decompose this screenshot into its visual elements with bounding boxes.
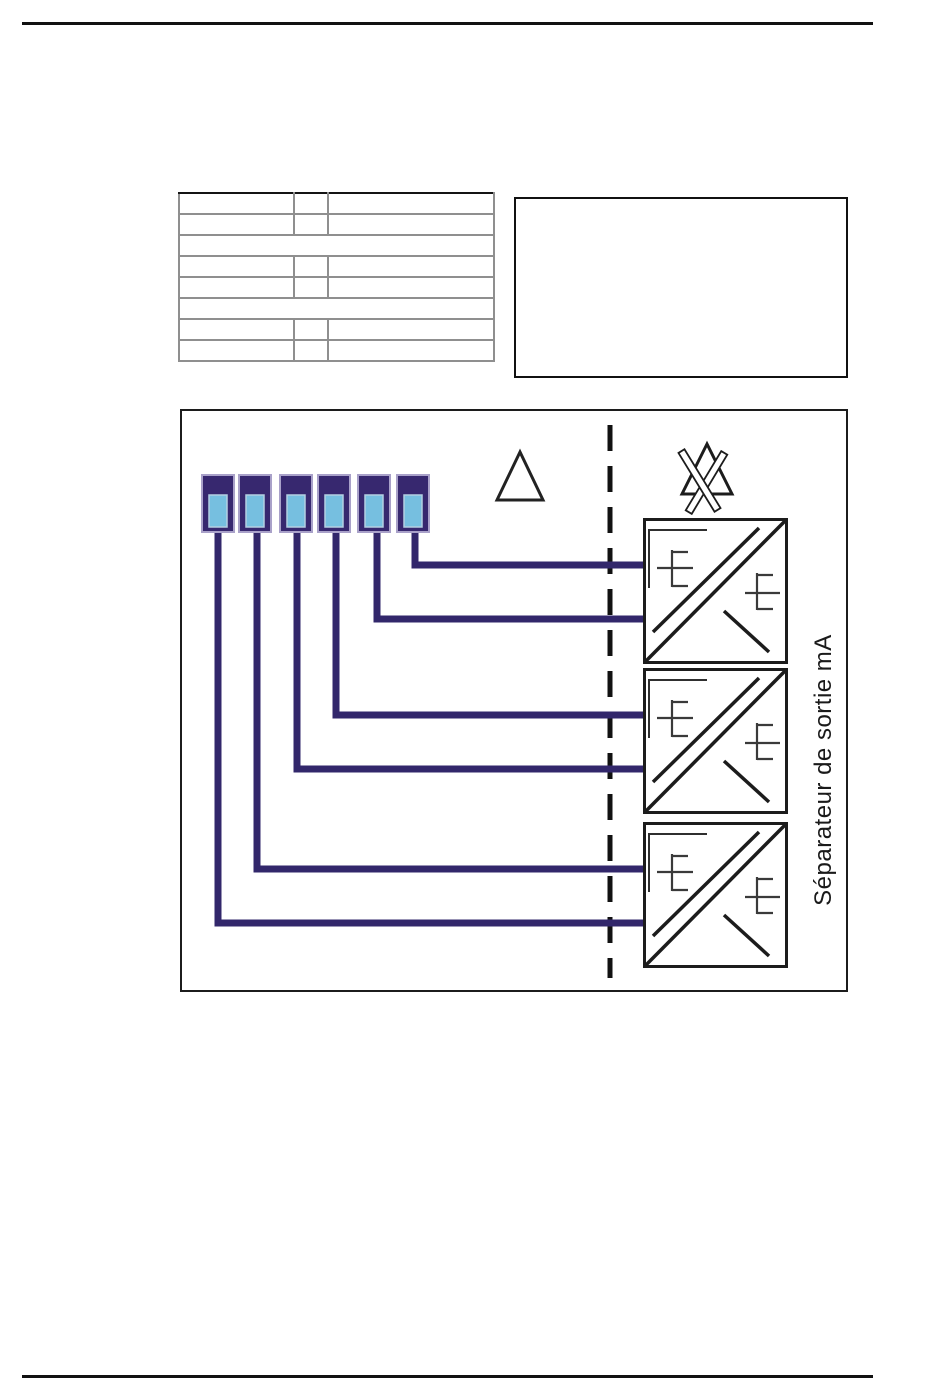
crossed-triangle-icon [678, 444, 732, 514]
table-cell [294, 340, 328, 361]
table-cell-full [179, 298, 494, 319]
table-cell [179, 256, 294, 277]
table-row [179, 340, 494, 361]
terminal-block-4 [318, 475, 350, 532]
separator-1 [644, 519, 786, 662]
table-cell [294, 319, 328, 340]
table-cell [328, 340, 494, 361]
table-cell-full [179, 235, 494, 256]
terminal-block-5 [358, 475, 390, 532]
terminal-block-6 [397, 475, 429, 532]
terminal-window [246, 495, 264, 527]
table-row [179, 193, 494, 214]
top-rule [22, 22, 873, 25]
table-cell [294, 214, 328, 235]
table-cell [179, 214, 294, 235]
table-row [179, 214, 494, 235]
table-cell [294, 256, 328, 277]
table-cell [294, 193, 328, 214]
terminal-window [325, 495, 343, 527]
terminal-block-1 [202, 475, 234, 532]
table-cell [179, 340, 294, 361]
separator-3 [644, 823, 786, 966]
wire-terminal-2-to-separator-3-upper [257, 532, 646, 869]
table-cell [328, 193, 494, 214]
table-cell [328, 214, 494, 235]
table-row [179, 277, 494, 298]
spec-table [178, 192, 495, 362]
table-cell [328, 256, 494, 277]
table-row [179, 298, 494, 319]
terminal-window [287, 495, 305, 527]
terminal-window [404, 495, 422, 527]
separator-output-label: Séparateur de sortie mA [809, 620, 839, 920]
table-row [179, 235, 494, 256]
table-row [179, 256, 494, 277]
table-cell [179, 319, 294, 340]
table-cell [179, 277, 294, 298]
table-row [179, 319, 494, 340]
wiring-diagram [180, 409, 848, 992]
warning-triangle-icon [497, 452, 543, 500]
table-cell [328, 319, 494, 340]
wire-terminal-4-to-separator-2-upper [336, 532, 646, 715]
table-cell [328, 277, 494, 298]
note-box [514, 197, 848, 378]
terminal-block-2 [239, 475, 271, 532]
bottom-rule [22, 1375, 873, 1378]
separator-2 [644, 669, 786, 812]
manual-page: Séparateur de sortie mA [0, 0, 950, 1388]
table-cell [179, 193, 294, 214]
terminal-block-3 [280, 475, 312, 532]
terminal-window [209, 495, 227, 527]
terminal-window [365, 495, 383, 527]
wire-terminal-1-to-separator-3-lower [218, 532, 646, 923]
table-cell [294, 277, 328, 298]
